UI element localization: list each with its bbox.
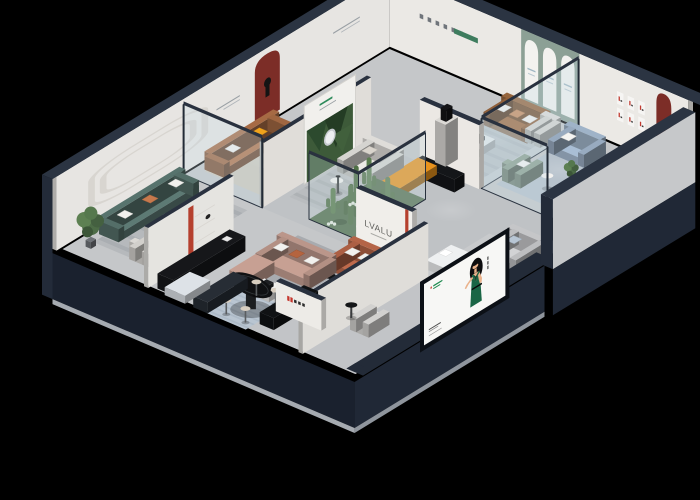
ceiling-light-glow — [425, 198, 477, 222]
showroom-isometric-render: LVALU — [0, 0, 700, 500]
showroom-screenshot: LVALU — [0, 0, 700, 500]
